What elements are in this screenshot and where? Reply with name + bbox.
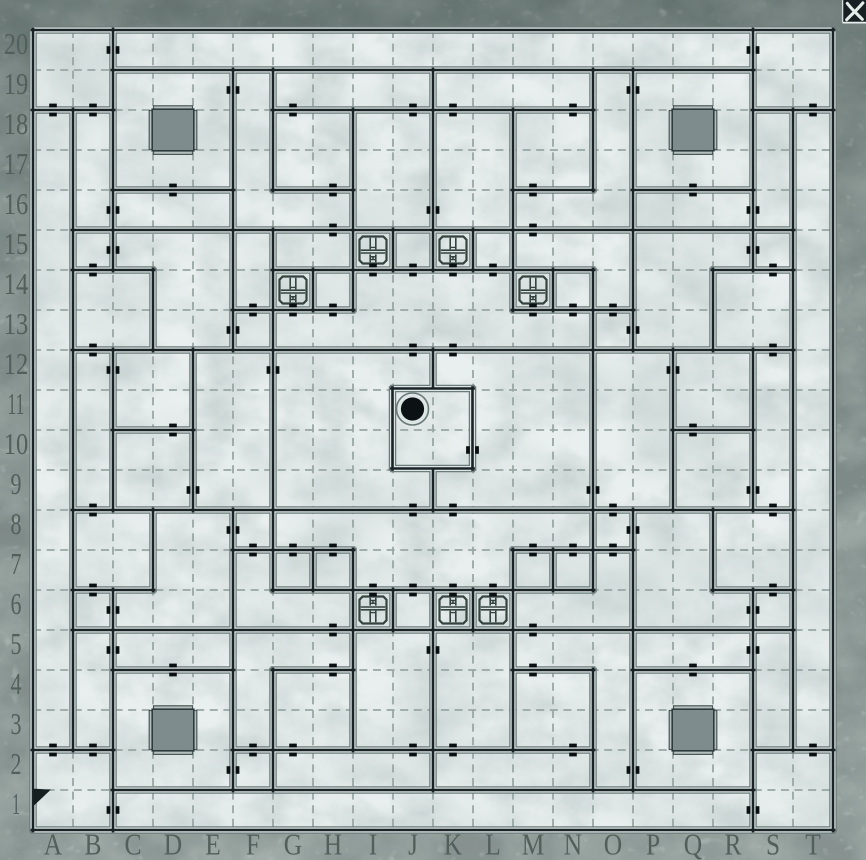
svg-text:R: R (725, 827, 742, 860)
svg-text:S: S (766, 827, 780, 860)
svg-text:16: 16 (4, 186, 29, 221)
svg-text:C: C (125, 827, 142, 860)
svg-text:M: M (522, 827, 545, 860)
svg-text:I: I (369, 827, 378, 860)
svg-text:O: O (604, 827, 622, 860)
svg-text:4: 4 (11, 666, 22, 701)
svg-text:T: T (805, 827, 821, 860)
svg-text:13: 13 (4, 306, 29, 341)
svg-text:15: 15 (4, 226, 29, 261)
svg-text:B: B (85, 827, 102, 860)
svg-text:K: K (444, 827, 463, 860)
svg-text:14: 14 (4, 266, 29, 301)
svg-text:9: 9 (11, 466, 22, 501)
svg-text:N: N (564, 827, 582, 860)
svg-text:7: 7 (11, 546, 22, 581)
svg-text:E: E (205, 827, 221, 860)
svg-text:11: 11 (8, 386, 25, 421)
svg-text:A: A (44, 827, 63, 860)
svg-text:6: 6 (11, 586, 22, 621)
svg-text:5: 5 (11, 626, 22, 661)
svg-text:3: 3 (11, 706, 22, 741)
svg-text:J: J (408, 827, 418, 860)
svg-text:20: 20 (4, 26, 29, 61)
svg-text:19: 19 (4, 66, 29, 101)
svg-text:D: D (164, 827, 182, 860)
svg-text:1: 1 (12, 786, 20, 821)
svg-text:F: F (246, 827, 260, 860)
svg-text:G: G (284, 827, 302, 860)
svg-text:P: P (646, 827, 660, 860)
svg-text:18: 18 (4, 106, 29, 141)
svg-text:2: 2 (11, 746, 22, 781)
svg-text:L: L (485, 827, 501, 860)
svg-text:17: 17 (4, 146, 29, 181)
svg-text:H: H (324, 827, 342, 860)
svg-text:10: 10 (4, 426, 29, 461)
svg-text:Q: Q (684, 827, 702, 860)
svg-text:12: 12 (4, 346, 29, 381)
svg-text:8: 8 (11, 506, 22, 541)
